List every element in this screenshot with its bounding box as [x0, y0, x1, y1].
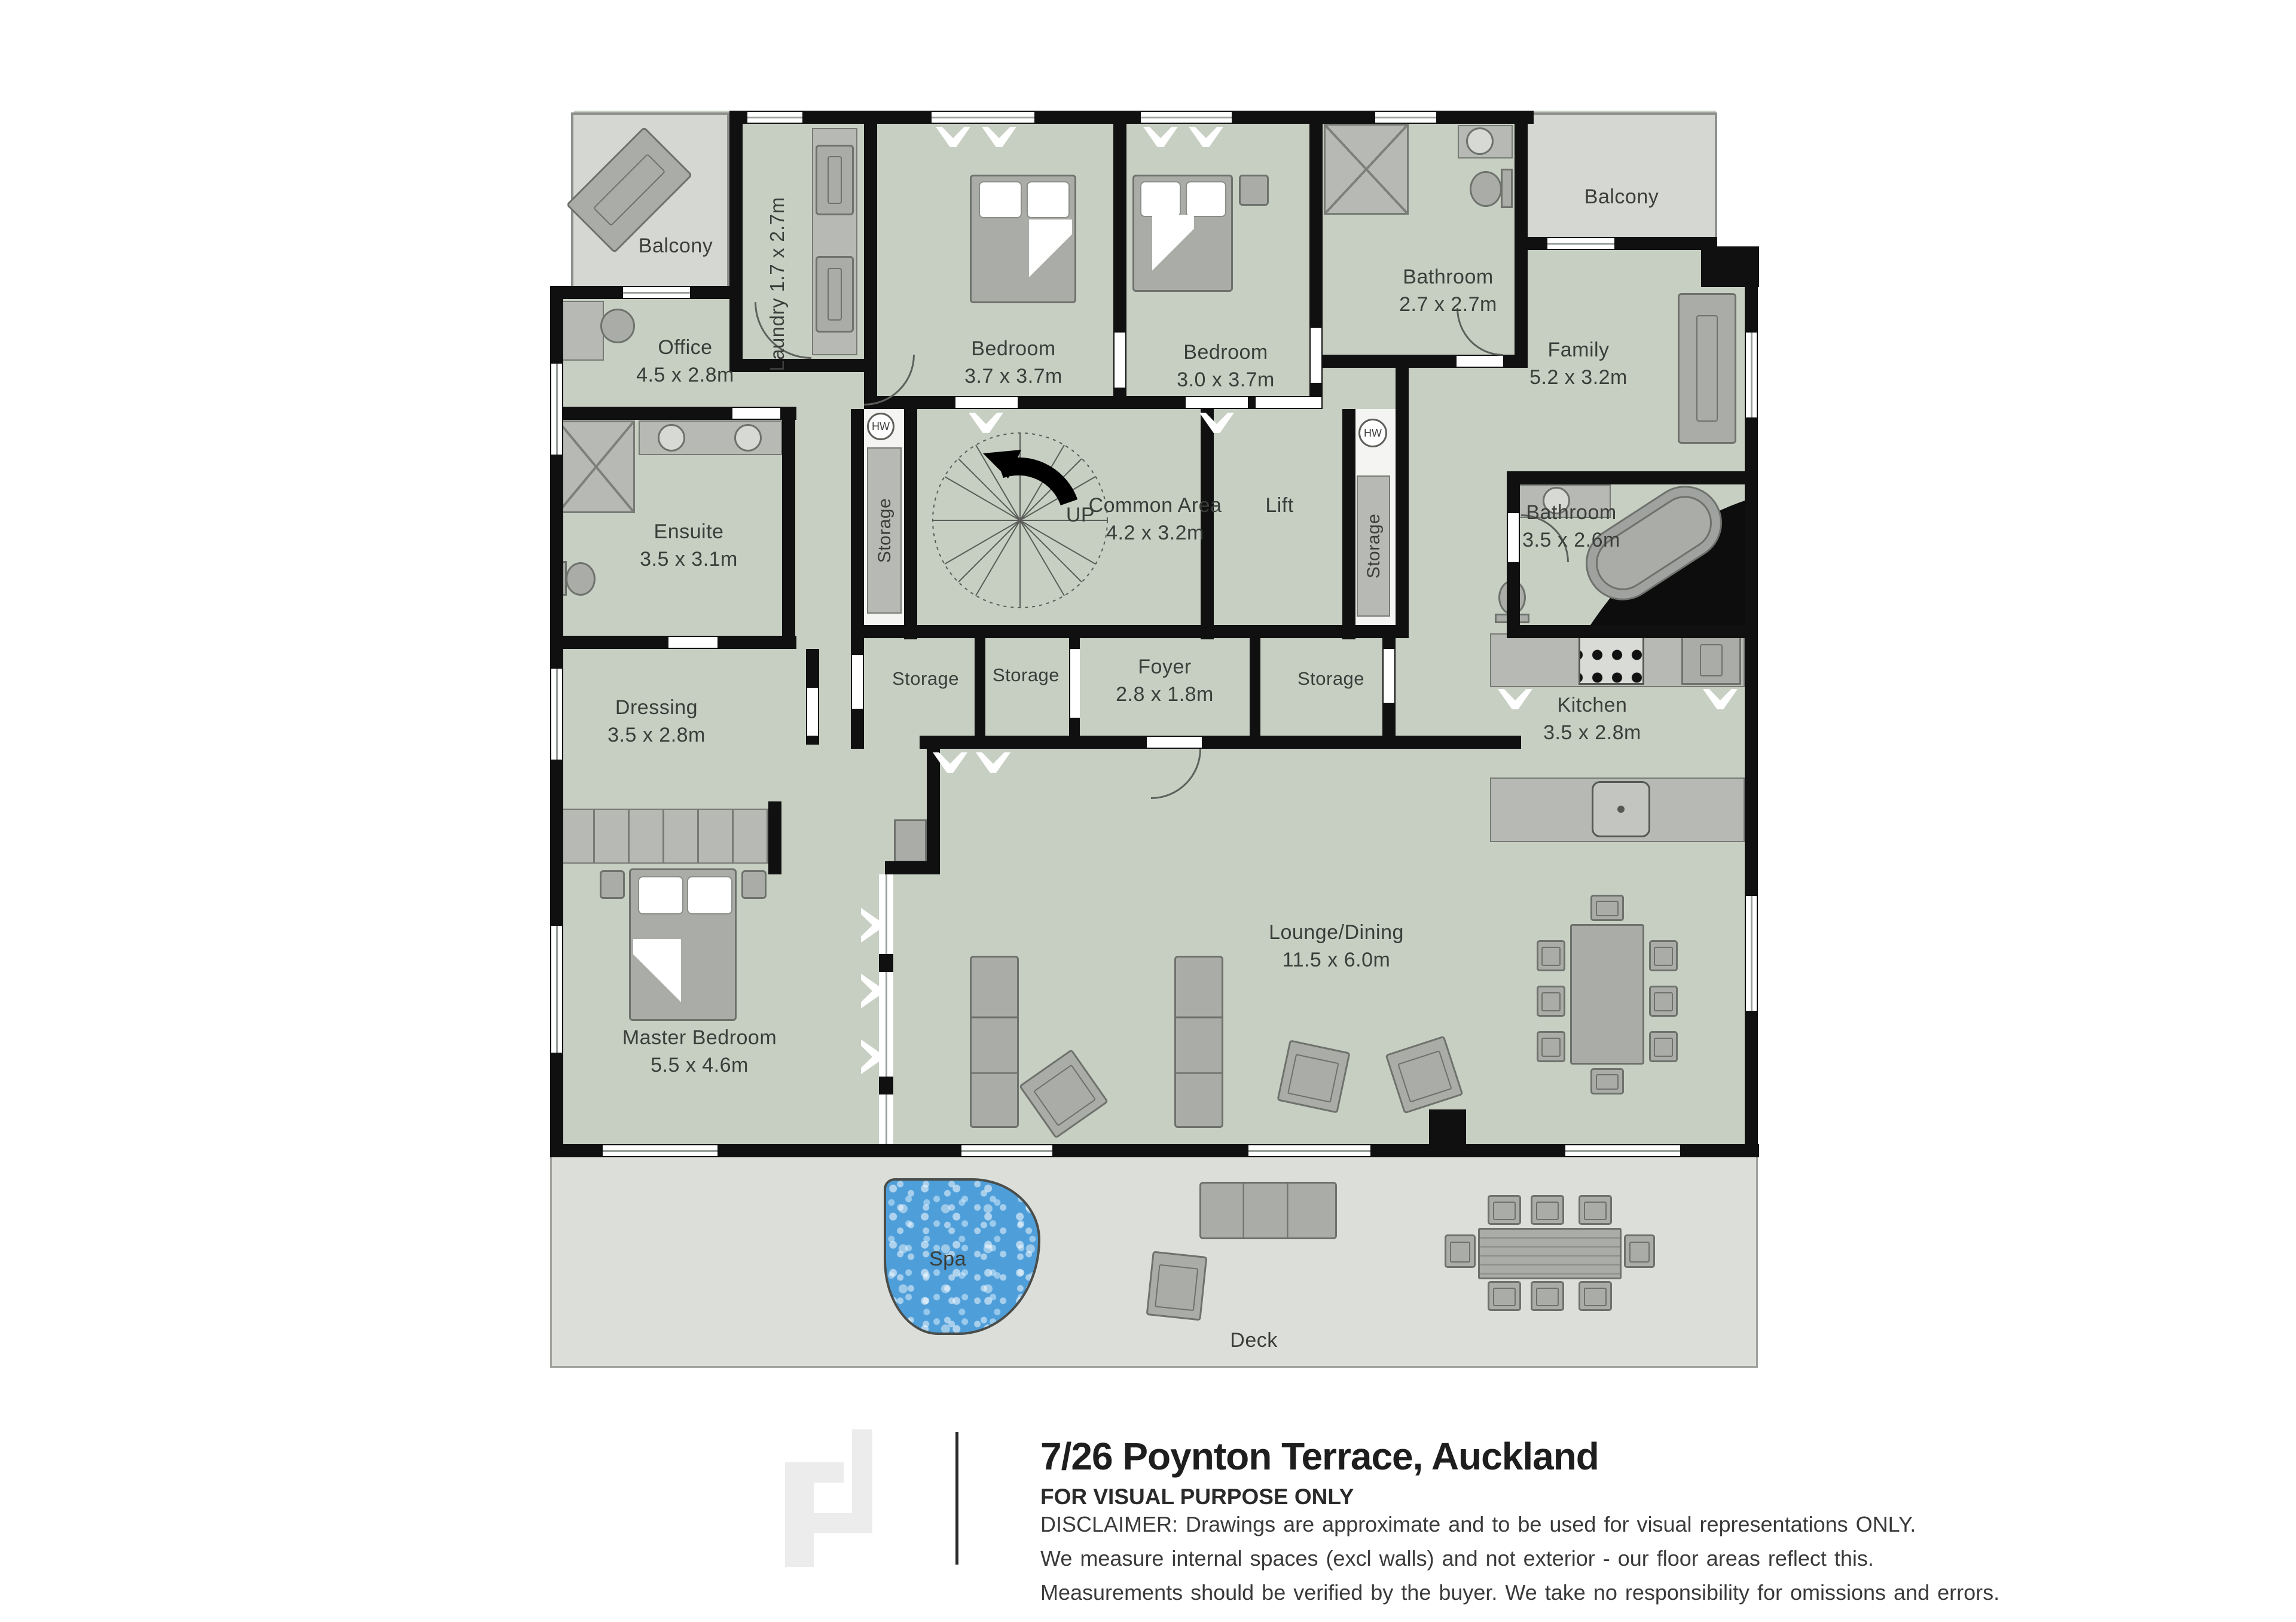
label-lounge-dining: Lounge/Dining 11.5 x 6.0m	[1269, 919, 1404, 974]
wall	[1429, 1109, 1466, 1145]
label-bedroom2: Bedroom 3.0 x 3.7m	[1177, 339, 1275, 394]
window	[932, 112, 1034, 123]
label-dressing: Dressing 3.5 x 2.8m	[607, 694, 706, 749]
sliding-door	[1547, 238, 1614, 249]
label-storage-strip-right: Storage	[1361, 514, 1387, 579]
outdoor-table-icon	[1478, 1228, 1622, 1279]
dining-chair	[1590, 1068, 1624, 1094]
wall	[768, 801, 781, 874]
master-cupboard	[894, 819, 927, 862]
outdoor-chair	[1578, 1281, 1612, 1311]
wall	[782, 407, 795, 649]
label-deck: Deck	[1230, 1327, 1277, 1354]
door-gap	[1508, 513, 1519, 562]
outdoor-chair	[1531, 1195, 1564, 1225]
hot-water-cylinder-icon: HW	[867, 413, 894, 440]
lift-door-gap	[1256, 397, 1321, 408]
outdoor-chair	[1531, 1281, 1564, 1311]
laundry-tub-icon	[816, 256, 854, 333]
outdoor-chair	[1578, 1195, 1612, 1225]
window	[961, 1145, 1052, 1156]
bed-bedroom1	[970, 175, 1076, 303]
label-laundry: Laundry 1.7 x 2.7m	[765, 197, 790, 371]
dining-table-icon	[1570, 924, 1644, 1065]
sink-icon	[1466, 127, 1494, 155]
nightstand	[741, 870, 767, 899]
door-gap	[1384, 649, 1394, 703]
dining-chair	[1649, 1031, 1678, 1062]
disclaimer-line: We measure internal spaces (excl walls) …	[1040, 1541, 1874, 1575]
family-sofa-icon	[1678, 293, 1736, 444]
label-bathroom-top: Bathroom 2.7 x 2.7m	[1399, 263, 1497, 318]
door-jamb	[879, 1077, 893, 1094]
sink-icon	[658, 424, 685, 452]
lounge-sofa-icon	[1174, 956, 1223, 1128]
window	[1375, 112, 1436, 123]
balcony-top-right	[1525, 112, 1717, 249]
nightstand	[600, 870, 625, 899]
office-chair	[600, 309, 635, 343]
wall	[1250, 625, 1260, 748]
outdoor-chair	[1488, 1195, 1521, 1225]
window	[747, 112, 802, 123]
label-office: Office 4.5 x 2.8m	[636, 334, 734, 389]
wall	[920, 736, 1521, 749]
armchair-icon	[1277, 1039, 1350, 1113]
wall	[1515, 111, 1528, 368]
sink-icon	[734, 424, 762, 452]
label-spa: Spa	[929, 1245, 966, 1273]
window	[551, 669, 562, 760]
label-ensuite: Ensuite 3.5 x 3.1m	[640, 518, 738, 573]
label-balcony-tr: Balcony	[1584, 183, 1659, 211]
lounge-sofa-icon	[970, 956, 1019, 1128]
label-storage-strip-left: Storage	[872, 498, 897, 563]
door-gap	[852, 655, 863, 709]
label-bathroom-right: Bathroom 3.5 x 2.6m	[1522, 499, 1620, 554]
outdoor-chair	[1445, 1234, 1476, 1268]
dining-chair	[1590, 895, 1624, 921]
label-storage-a: Storage	[892, 665, 959, 693]
dining-chair	[1537, 1031, 1565, 1062]
wall	[927, 749, 940, 874]
wall	[1342, 409, 1355, 639]
label-lift: Lift	[1265, 492, 1293, 519]
label-family: Family 5.2 x 3.2m	[1529, 336, 1628, 391]
window	[1565, 1145, 1680, 1156]
dining-chair	[1649, 986, 1678, 1017]
outdoor-chair	[1624, 1234, 1655, 1268]
deck-armchair-icon	[1146, 1251, 1208, 1321]
door-gap	[1115, 333, 1125, 388]
window	[1746, 896, 1757, 1011]
floorplan-page: { "document": { "title": "7/26 Poynton T…	[0, 0, 2296, 1622]
island-sink-icon	[1592, 781, 1650, 837]
wall	[1396, 368, 1409, 638]
window	[551, 926, 562, 1053]
office-desk	[556, 301, 604, 361]
wall	[729, 359, 868, 372]
toilet-icon	[1501, 169, 1513, 208]
door-gap	[1457, 356, 1503, 367]
door-gap	[1186, 397, 1248, 408]
bed-master	[629, 868, 737, 1021]
sliding-door	[879, 874, 893, 1144]
door-gap	[1070, 649, 1080, 718]
wall	[1701, 246, 1759, 287]
footer-divider	[955, 1432, 958, 1565]
door-gap	[1311, 328, 1321, 383]
wall	[975, 625, 985, 748]
disclaimer-line: DISCLAIMER: Drawings are approximate and…	[1040, 1507, 1916, 1541]
dining-chair	[1537, 940, 1565, 971]
window	[1248, 1145, 1370, 1156]
dining-chair	[1537, 986, 1565, 1017]
toilet-bowl	[566, 562, 596, 596]
visual-purpose-note: FOR VISUAL PURPOSE ONLY	[1040, 1484, 1354, 1510]
door-jamb	[879, 954, 893, 972]
window	[1141, 112, 1232, 123]
property-address: 7/26 Poynton Terrace, Auckland	[1040, 1434, 1599, 1478]
hot-water-cylinder-icon: HW	[1358, 419, 1387, 447]
stove-icon	[1578, 636, 1644, 685]
wardrobe	[559, 809, 770, 864]
window	[603, 1145, 717, 1156]
door-gap	[807, 688, 818, 736]
wall	[904, 409, 917, 639]
wall	[1507, 471, 1758, 484]
entry-door-gap	[1147, 737, 1202, 748]
wall	[851, 625, 1409, 638]
wall	[885, 861, 940, 874]
window	[623, 287, 690, 298]
disclaimer-line: Measurements should be verified by the b…	[1040, 1575, 1999, 1609]
label-storage-b: Storage	[993, 661, 1060, 689]
label-master-bedroom: Master Bedroom 5.5 x 4.6m	[622, 1024, 777, 1079]
label-balcony-tl: Balcony	[639, 232, 713, 260]
label-kitchen: Kitchen 3.5 x 2.8m	[1543, 691, 1641, 746]
deck-sofa-icon	[1199, 1182, 1337, 1239]
toilet-bowl	[1470, 171, 1502, 207]
washing-machine-icon	[816, 145, 854, 215]
label-common-area: Common Area 4.2 x 3.2m	[1083, 492, 1227, 547]
outside-patch	[550, 111, 574, 287]
dining-chair	[1649, 940, 1678, 971]
door-gap	[668, 637, 717, 648]
label-storage-c: Storage	[1297, 665, 1364, 693]
wall	[1507, 625, 1758, 638]
label-bedroom1: Bedroom 3.7 x 3.7m	[964, 335, 1062, 390]
door-gap	[955, 397, 1018, 408]
nightstand	[1239, 175, 1269, 206]
outdoor-chair	[1488, 1281, 1521, 1311]
label-foyer: Foyer 2.8 x 1.8m	[1116, 653, 1214, 708]
fridge-icon	[1681, 636, 1741, 685]
window	[1746, 333, 1757, 417]
wall	[864, 396, 1323, 409]
ensuite-shower-icon	[557, 420, 635, 513]
window	[551, 364, 562, 455]
bed-bedroom2	[1132, 175, 1233, 292]
door-gap	[732, 408, 780, 419]
shower-icon	[1324, 124, 1409, 215]
outside-patch	[1716, 111, 1758, 248]
